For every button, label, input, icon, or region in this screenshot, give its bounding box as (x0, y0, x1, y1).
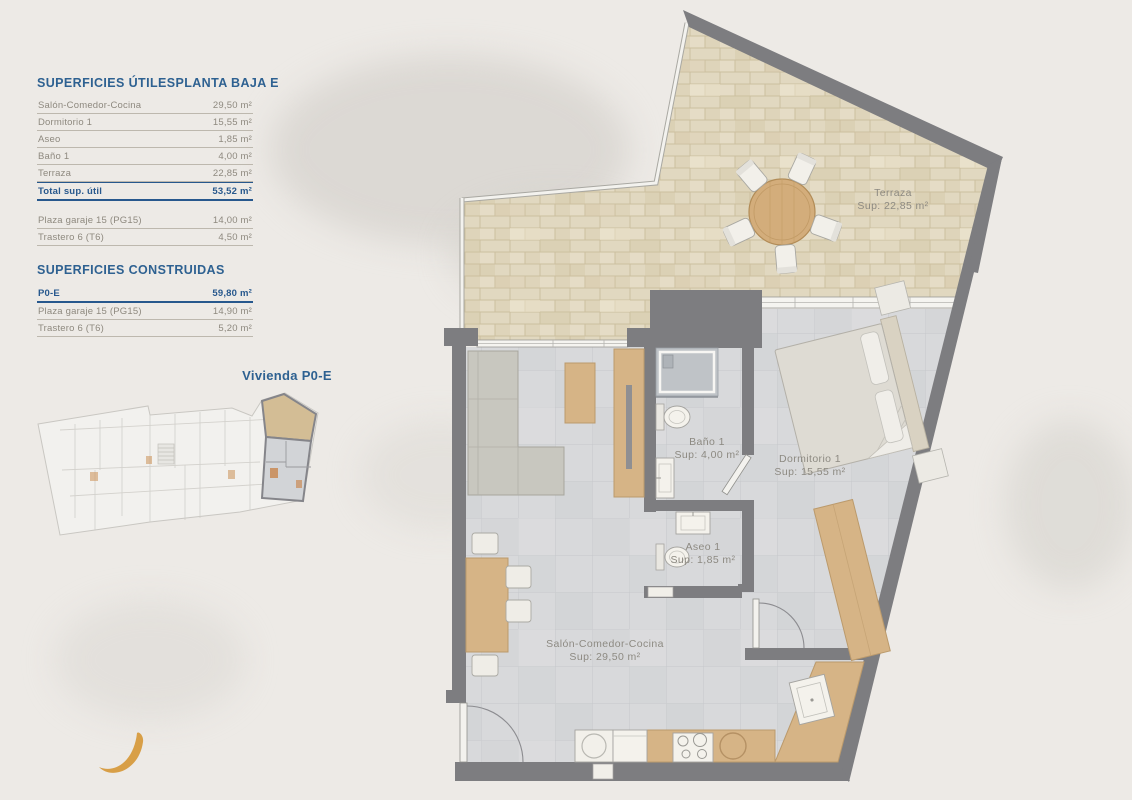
mini-plan-stairs (158, 444, 174, 464)
room-label-salon: Salón-Comedor-Cocina (546, 638, 664, 650)
floor-plan-sheet: { "colors": { "accent_blue": "#2e6191", … (0, 0, 1132, 800)
wall-aseo-east (742, 500, 754, 588)
room-sup-aseo: Sup: 1,85 m² (671, 554, 736, 566)
aseo-door-threshold (648, 587, 673, 597)
room-sup-bano: Sup: 4,00 m² (675, 449, 740, 461)
room-sup-dormitorio: Sup: 15,55 m² (774, 466, 845, 478)
mini-plan-highlighted-unit (262, 394, 316, 501)
room-sup-terraza: Sup: 22,85 m² (857, 200, 928, 212)
wall-left (452, 330, 466, 703)
mini-key-plan (38, 393, 318, 535)
hob (673, 733, 713, 762)
wall-bano-aseo-divider (644, 500, 754, 511)
room-label-bano: Baño 1 (689, 436, 725, 448)
wall-bano-east (742, 290, 754, 455)
sink-bano (656, 458, 674, 498)
wall-bano-west (644, 347, 656, 512)
room-label-terraza: Terraza (874, 187, 912, 199)
dormitorio-terrace-window (760, 297, 958, 308)
tv-screen (626, 385, 632, 469)
room-label-aseo: Aseo 1 (685, 541, 720, 553)
wall-left-cap (444, 328, 478, 346)
washing-machine (575, 730, 613, 762)
wall-left-stub (446, 690, 466, 703)
entry-threshold (593, 764, 613, 779)
salon-terrace-window (477, 340, 628, 347)
room-label-dormitorio: Dormitorio 1 (779, 453, 841, 465)
room-sup-salon: Sup: 29,50 m² (569, 651, 640, 663)
coffee-table (565, 363, 595, 423)
crescent-logo-icon (99, 733, 143, 773)
floor-plan-drawing: Terraza Sup: 22,85 m² Baño 1 Sup: 4,00 m… (0, 0, 1132, 800)
main-floor-plan: Terraza Sup: 22,85 m² Baño 1 Sup: 4,00 m… (444, 10, 1003, 782)
sink-aseo (676, 512, 710, 534)
wall-bottom (455, 762, 850, 781)
dishwasher (613, 730, 647, 762)
shower (656, 348, 718, 397)
toilet-bano (656, 404, 690, 430)
dining-table (466, 558, 508, 652)
tv-cabinet (614, 349, 644, 497)
